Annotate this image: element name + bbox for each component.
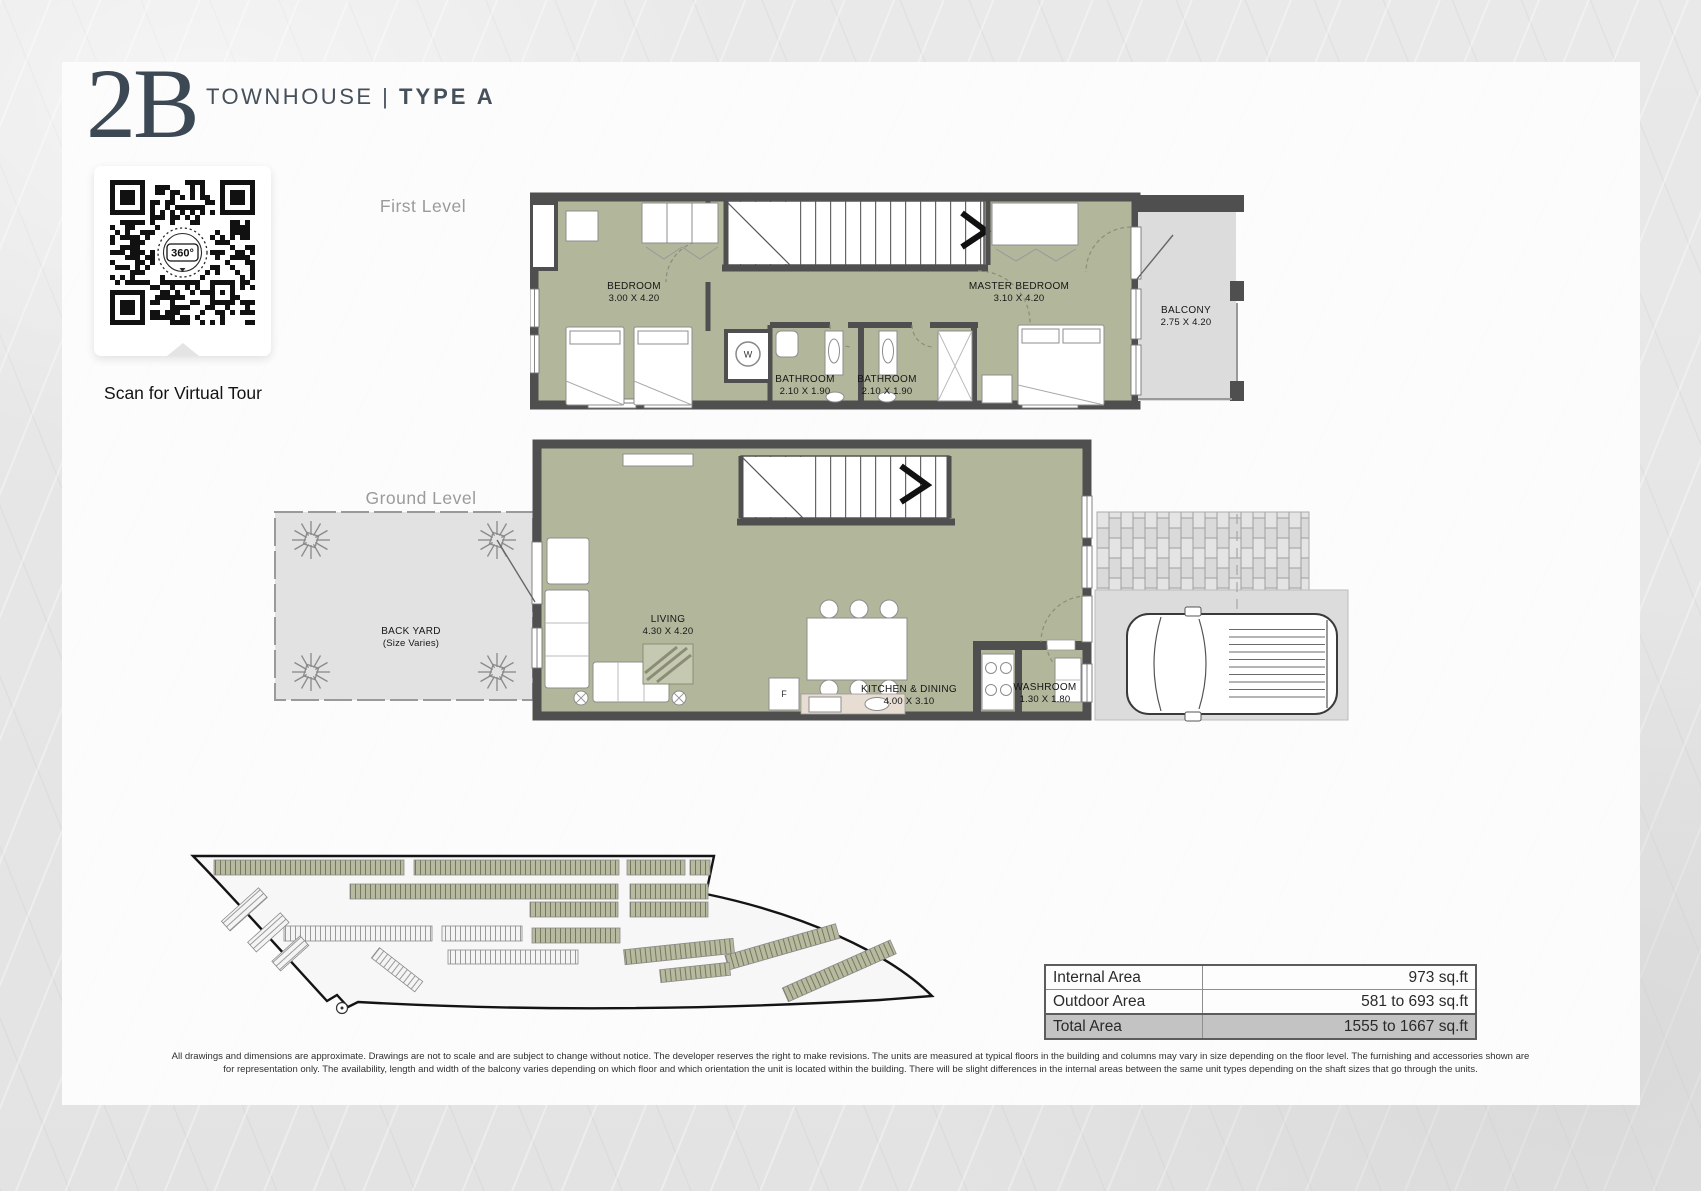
label-washroom: WASHROOM <box>1013 682 1076 693</box>
driveway-area <box>1095 512 1348 721</box>
dims-backyard: (Size Varies) <box>383 638 439 649</box>
label-kitchen-dining: KITCHEN & DINING <box>861 684 957 695</box>
dims-bathroom-1: 2.10 X 1.90 <box>780 386 831 397</box>
tv-console <box>623 454 693 466</box>
subtitle-type: TYPE A <box>399 84 496 109</box>
dims-bathroom-2: 2.10 X 1.90 <box>862 386 913 397</box>
table-row: Internal Area 973 sq.ft <box>1045 965 1476 990</box>
area-row-label: Internal Area <box>1045 965 1203 990</box>
first-balcony <box>1136 195 1244 401</box>
qr-card[interactable]: 360° <box>94 166 271 356</box>
unit-subtitle: TOWNHOUSE | TYPE A <box>206 84 496 110</box>
sofa <box>545 590 589 688</box>
qr-code-icon: 360° <box>110 180 255 325</box>
dining-table <box>807 618 907 680</box>
unit-code-title: 2B <box>86 54 197 154</box>
disclaimer: All drawings and dimensions are approxim… <box>85 1050 1616 1076</box>
washer-closet: W <box>726 331 770 381</box>
chair <box>850 600 868 618</box>
first-level-floorplan: W BEDROOM 3.00 X 4.20 BATHROOM 2.10 X 1.… <box>530 185 1250 417</box>
community-site-plan <box>180 848 945 1020</box>
dims-washroom: 1.30 X 1.80 <box>1020 694 1071 705</box>
fridge-glyph: F <box>781 689 787 699</box>
dims-kitchen-dining: 4.00 X 3.10 <box>884 696 935 707</box>
label-master-bedroom: MASTER BEDROOM <box>969 281 1069 292</box>
disclaimer-line-1: All drawings and dimensions are approxim… <box>85 1050 1616 1063</box>
subtitle-series: TOWNHOUSE <box>206 84 374 109</box>
label-backyard: BACK YARD <box>381 626 441 637</box>
area-row-value: 581 to 693 sq.ft <box>1203 990 1477 1015</box>
chair <box>880 600 898 618</box>
washer-glyph: W <box>744 350 753 360</box>
ground-level-floorplan: BACK YARD (Size Varies) <box>245 438 1350 730</box>
card-notch <box>167 343 199 356</box>
site-entrance-marker-icon <box>337 1003 348 1014</box>
label-bedroom: BEDROOM <box>607 281 661 292</box>
chair <box>820 600 838 618</box>
disclaimer-line-2: for representation only. The availabilit… <box>85 1063 1616 1076</box>
label-bathroom-1: BATHROOM <box>775 374 834 385</box>
dims-bedroom: 3.00 X 4.20 <box>609 293 660 304</box>
stove <box>982 654 1014 710</box>
table-row-total: Total Area 1555 to 1667 sq.ft <box>1045 1014 1476 1039</box>
area-row-value: 1555 to 1667 sq.ft <box>1203 1014 1477 1039</box>
area-row-label: Outdoor Area <box>1045 990 1203 1015</box>
label-bathroom-2: BATHROOM <box>857 374 916 385</box>
table-row: Outdoor Area 581 to 693 sq.ft <box>1045 990 1476 1015</box>
label-balcony: BALCONY <box>1161 305 1211 316</box>
armchair <box>547 538 589 584</box>
360-badge-icon: 360° <box>155 225 210 280</box>
area-table: Internal Area 973 sq.ft Outdoor Area 581… <box>1044 964 1477 1040</box>
dims-living: 4.30 X 4.20 <box>643 626 694 637</box>
dims-master-bedroom: 3.10 X 4.20 <box>994 293 1045 304</box>
brick-walkway <box>1097 512 1309 590</box>
ground-stairs <box>737 456 955 522</box>
area-row-label: Total Area <box>1045 1014 1203 1039</box>
qr-caption: Scan for Virtual Tour <box>60 383 306 404</box>
dims-balcony: 2.75 X 4.20 <box>1161 317 1212 328</box>
area-row-value: 973 sq.ft <box>1203 965 1477 990</box>
car-icon <box>1127 607 1337 721</box>
badge-label: 360° <box>171 248 194 260</box>
back-yard: BACK YARD (Size Varies) <box>275 512 533 700</box>
subtitle-divider: | <box>382 84 390 109</box>
first-stairs <box>722 201 988 268</box>
label-living: LIVING <box>651 614 686 625</box>
